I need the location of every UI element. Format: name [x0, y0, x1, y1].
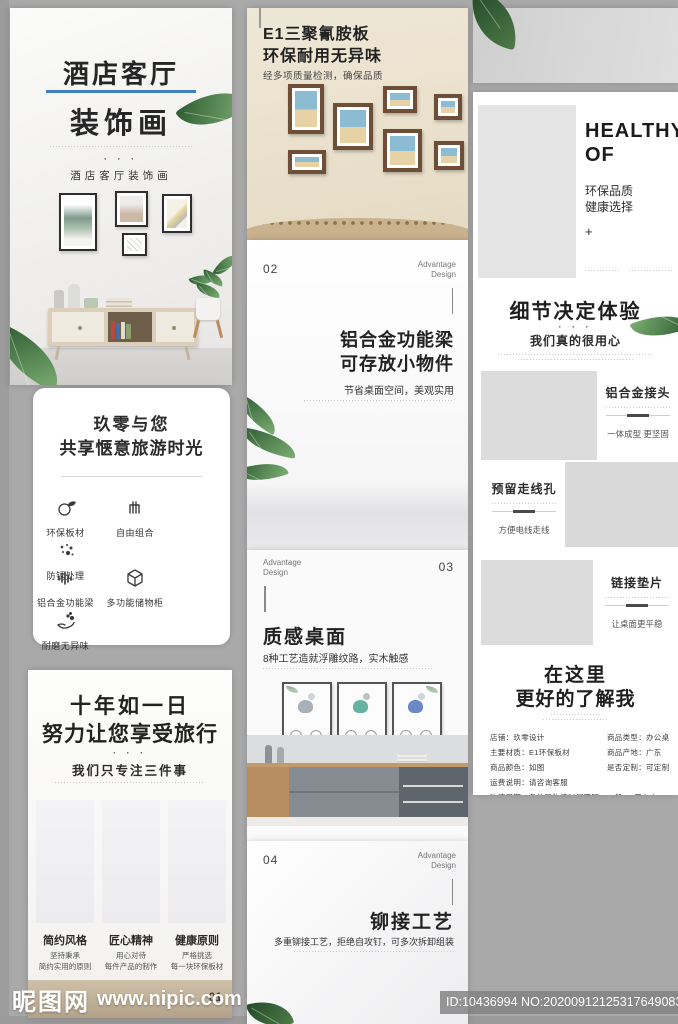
tag-line2: Design: [418, 861, 456, 871]
promise-section: 十年如一日 努力让您享受旅行 · · · 我们只专注三件事 简约风格 匠心精神 …: [28, 670, 232, 1018]
info-label: 商品颜色：: [490, 763, 529, 772]
detail-image-placeholder: [565, 462, 678, 547]
info-label: 商品产地：: [607, 748, 646, 757]
features-card: 玖零与您 共享惬意旅游时光 环保板材 自由组合 防锈处理: [33, 388, 230, 645]
column-right: HEALTHY OF 环保品质 健康选择 + 细节决定体验 · · · 我们真的…: [473, 0, 678, 1024]
decor-line: [605, 597, 669, 598]
section-number: 02: [263, 262, 278, 276]
promise-image-placeholder: [36, 800, 94, 923]
promise-item-title: 健康原则: [160, 932, 232, 948]
micro-caption: [585, 270, 619, 271]
site-logo: 昵图网: [12, 982, 90, 1017]
tag-line1: Advantage: [418, 260, 456, 270]
info-value: 如图: [529, 763, 545, 772]
decor-line: [55, 782, 205, 783]
info-label: 店铺：: [490, 733, 513, 742]
healthy-image-placeholder: [478, 105, 576, 278]
info-row: 物流周期：各地区物流时间不同，一般3-7天左右: [490, 792, 658, 795]
detail-row-text: 链接垫片 让桌面更平稳: [601, 574, 673, 630]
decor-line: [518, 359, 633, 360]
decor-line: [304, 400, 454, 401]
promise-item-desc: 坚持秉承: [28, 950, 102, 961]
info-value: 各地区物流时间不同，一般3-7天左右: [529, 793, 658, 795]
photowall-title-line1: E1三聚氰胺板: [263, 20, 370, 44]
section-02: 02 Advantage Design 铝合金功能梁 可存放小物件 节省桌面空间…: [247, 240, 468, 550]
info-value: 广东: [646, 748, 662, 757]
detail-title: 铝合金接头: [603, 384, 673, 401]
headboard: [247, 218, 468, 240]
decor-line: [50, 146, 192, 147]
feature-item: 耐磨无异味: [33, 609, 98, 652]
promise-item-title: 简约风格: [28, 932, 102, 948]
potted-plant: [188, 272, 228, 346]
card-divider: [61, 476, 202, 477]
detail-desc: 方便电线走线: [485, 524, 563, 536]
photo-frame: [288, 84, 324, 134]
info-value: E1环保板材: [529, 748, 570, 757]
hero-tagline: 酒店客厅装饰画: [10, 168, 232, 183]
promise-item-title: 匠心精神: [94, 932, 168, 948]
healthy-title-line1: HEALTHY: [585, 120, 678, 143]
divider: [492, 511, 556, 512]
promise-item-desc: 每一块环保板材: [160, 961, 232, 972]
feature-label: 多功能储物柜: [102, 596, 167, 609]
decor-line: [294, 951, 454, 952]
antirust-icon: [33, 539, 98, 563]
info-value: 玖零设计: [513, 733, 544, 742]
about-title-line1: 在这里: [473, 660, 678, 687]
eco-board-icon: [33, 496, 98, 520]
healthy-sub-line1: 环保品质: [585, 182, 633, 199]
photo-frame: [434, 94, 462, 120]
decor-line: [492, 503, 556, 504]
decor-dots: · · ·: [10, 154, 232, 164]
feature-item: 环保板材: [33, 496, 98, 539]
main-panel: HEALTHY OF 环保品质 健康选择 + 细节决定体验 · · · 我们真的…: [473, 92, 678, 795]
info-value: 办公桌: [646, 733, 669, 742]
info-label: 物流周期：: [490, 793, 529, 795]
detail-row-text: 预留走线孔 方便电线走线: [485, 480, 563, 536]
promise-title-line2: 努力让您享受旅行: [28, 718, 232, 748]
hero-section: 酒店客厅 装饰画 · · · 酒店客厅装饰画: [10, 8, 232, 385]
tag-line2: Design: [263, 568, 301, 578]
divider: [606, 415, 670, 416]
hero-title-line1: 酒店客厅: [10, 54, 232, 91]
photowall-subtitle: 经多项质量检测，确保品质: [263, 68, 383, 82]
detail-title: 链接垫片: [601, 574, 673, 591]
info-value: 可定制: [646, 763, 669, 772]
promise-item-desc: 每件产品的制作: [94, 961, 168, 972]
info-row: 店铺：玖零设计: [490, 732, 545, 743]
detail-desc: 一体成型 更坚固: [603, 428, 673, 440]
detail-page-preview: 酒店客厅 装饰画 · · · 酒店客厅装饰画: [0, 0, 678, 1024]
detail-image-placeholder: [481, 560, 593, 645]
micro-caption: [551, 714, 601, 715]
feature-label: 自由组合: [102, 526, 167, 539]
feature-item: 铝合金功能梁: [33, 566, 98, 609]
info-label: 运费说明：: [490, 778, 529, 787]
decor-line: [263, 668, 433, 669]
wall-art-frame: [59, 193, 97, 251]
card-title-line2: 共享惬意旅游时光: [33, 434, 230, 459]
photo-frame: [434, 141, 464, 170]
feature-label: 铝合金功能梁: [33, 596, 98, 609]
figurines: [265, 743, 291, 763]
detail-image-placeholder: [481, 371, 597, 460]
wall-art-frame: [115, 191, 148, 227]
section-03: Advantage Design 03 质感桌面 8种工艺造就浮雕纹路，实木触感: [247, 550, 468, 841]
column-left: 酒店客厅 装饰画 · · · 酒店客厅装饰画: [10, 8, 232, 1018]
feature-item: 多功能储物柜: [102, 566, 167, 609]
title-underline: [46, 90, 196, 93]
photo-frame: [383, 129, 422, 172]
tag-rule: [452, 879, 454, 905]
micro-caption: [543, 719, 609, 720]
s03-subtitle: 8种工艺造就浮雕纹路，实木触感: [263, 650, 409, 665]
promise-item-desc: 严格挑选: [160, 950, 232, 961]
s02-title-line2: 可存放小物件: [340, 350, 454, 376]
section-tag: Advantage Design: [263, 558, 301, 578]
product-info: 店铺：玖零设计 主要材质：E1环保板材 商品颜色：如图 运费说明：请咨询客服 物…: [490, 732, 675, 792]
storage-icon: [102, 566, 167, 590]
feature-label: 耐磨无异味: [33, 639, 98, 652]
decor-dots: · · ·: [28, 748, 232, 758]
tag-line1: Advantage: [418, 851, 456, 861]
info-row: 运费说明：请咨询客服: [490, 777, 568, 788]
info-label: 主要材质：: [490, 748, 529, 757]
free-combo-icon: [102, 496, 167, 520]
feature-label: 环保板材: [33, 526, 98, 539]
photo-frame: [383, 86, 417, 113]
promise-image-placeholder: [102, 800, 160, 923]
section-tag: Advantage Design: [418, 260, 456, 280]
tag-rule: [264, 586, 266, 612]
feature-item: 自由组合: [102, 496, 167, 539]
decor-line: [606, 407, 670, 408]
healthy-sub-line2: 健康选择: [585, 198, 633, 215]
info-row: 主要材质：E1环保板材: [490, 747, 570, 758]
photowall-title-line2: 环保耐用无异味: [263, 42, 382, 66]
books: [397, 755, 427, 762]
info-row: 是否定制：可定制: [607, 762, 669, 773]
tag-line1: Advantage: [263, 558, 301, 568]
section-tag: Advantage Design: [418, 851, 456, 871]
s02-subtitle: 节省桌面空间，美观实用: [344, 382, 454, 397]
promise-title-line1: 十年如一日: [28, 690, 232, 720]
photo-frame: [288, 150, 326, 174]
decor-line: [498, 354, 653, 355]
site-watermark: 昵图网 www.nipic.com: [12, 980, 242, 1018]
tv-stand: [48, 308, 198, 346]
card-title-line1: 玖零与您: [33, 410, 230, 435]
beam-icon: [33, 566, 98, 590]
left-edge-shade: [0, 0, 9, 1024]
decor-tick: [259, 8, 261, 28]
photowall-section: E1三聚氰胺板 环保耐用无异味 经多项质量检测，确保品质: [247, 8, 468, 240]
hero-title-line2: 装饰画: [10, 100, 232, 142]
info-label: 商品类型：: [607, 733, 646, 742]
photo-frame: [333, 103, 373, 150]
info-label: 是否定制：: [607, 763, 646, 772]
s04-title: 铆接工艺: [370, 907, 454, 934]
section-number: 04: [263, 853, 278, 867]
cabinet-photo: [247, 735, 468, 826]
detail-row-text: 铝合金接头 一体成型 更坚固: [603, 384, 673, 440]
s04-subtitle: 多重铆接工艺，拒绝自攻钉，可多次拆卸组装: [274, 935, 454, 948]
wall-art-frame: [122, 233, 147, 256]
info-row: 商品颜色：如图: [490, 762, 545, 773]
info-row: 商品产地：广东: [607, 747, 662, 758]
feature-grid-row2: 铝合金功能梁 多功能储物柜 耐磨无异味: [33, 566, 230, 652]
decor-items: [52, 280, 102, 308]
tag-rule: [452, 288, 454, 314]
detail-title: 预留走线孔: [485, 480, 563, 497]
info-value: 请咨询客服: [529, 778, 568, 787]
promise-item-desc: 用心对待: [94, 950, 168, 961]
cabinet: [247, 763, 468, 817]
leaf-icon: [247, 994, 294, 1024]
micro-caption: [629, 270, 673, 271]
promise-subtitle: 我们只专注三件事: [28, 760, 232, 779]
book-stack: [106, 298, 132, 307]
wearproof-icon: [33, 609, 98, 633]
divider: [605, 605, 669, 606]
site-url: www.nipic.com: [97, 988, 242, 1011]
info-row: 商品类型：办公桌: [607, 732, 669, 743]
tag-line2: Design: [418, 270, 456, 280]
about-title-line2: 更好的了解我: [473, 684, 678, 711]
section-number: 03: [439, 560, 454, 574]
wall-art-frame: [162, 194, 192, 233]
id-watermark: ID:10436994 NO:20200912125317649083: [440, 991, 678, 1014]
plus-mark: +: [585, 224, 593, 239]
promise-image-placeholder: [168, 800, 226, 923]
s02-title-line1: 铝合金功能梁: [340, 326, 454, 352]
promise-item-desc: 简约实用的原则: [28, 961, 102, 972]
healthy-title-line2: OF: [585, 144, 615, 167]
s03-title: 质感桌面: [263, 622, 347, 649]
column-middle: E1三聚氰胺板 环保耐用无异味 经多项质量检测，确保品质 02 Advantag…: [247, 8, 468, 1017]
section-04: 04 Advantage Design 铆接工艺 多重铆接工艺，拒绝自攻钉，可多…: [247, 841, 468, 1024]
detail-desc: 让桌面更平稳: [601, 618, 673, 630]
